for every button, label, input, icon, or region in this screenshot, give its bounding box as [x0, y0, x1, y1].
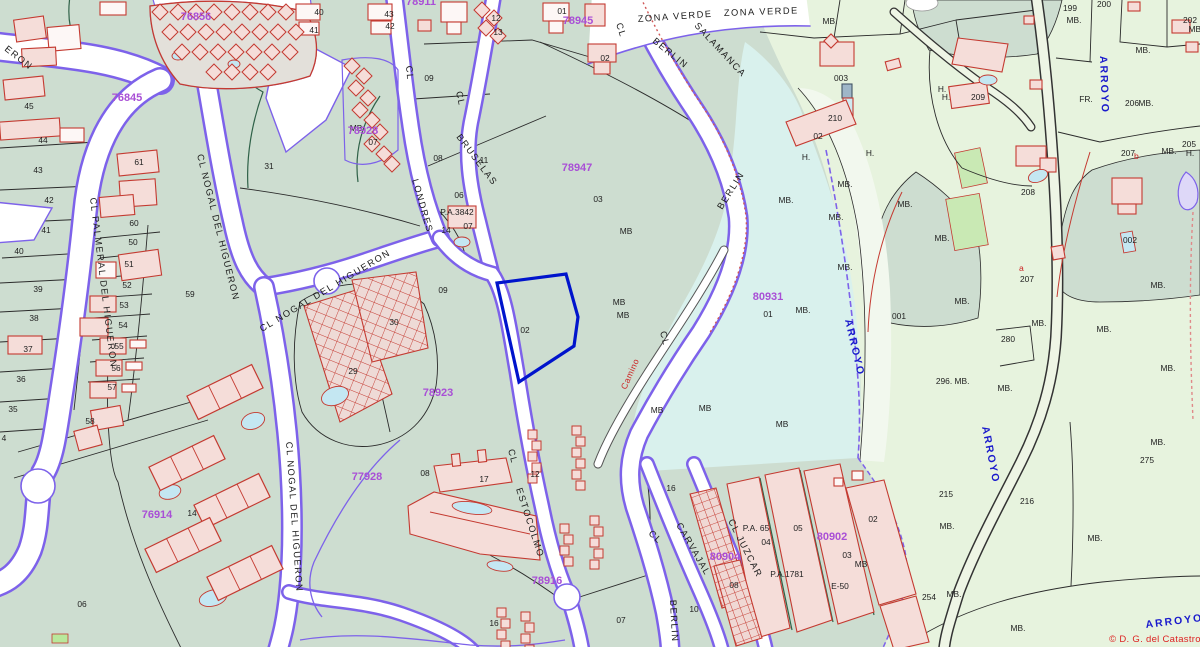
parcel-label-mb: MB. — [838, 262, 853, 272]
parcel-label-mb: MB. — [1139, 98, 1154, 108]
parcel-label-mb: MB. — [1067, 15, 1082, 25]
water-label-arroyo: ARROYO — [1097, 56, 1111, 114]
parcel-label-12: 12 — [530, 469, 540, 479]
building — [590, 538, 599, 547]
parcel-label-53: 53 — [119, 300, 129, 310]
cadastral-map[interactable]: 4544434241403938373635461605051525354555… — [0, 0, 1200, 647]
parcel-label-01: 01 — [763, 309, 773, 319]
parcel-label-fr: FR. — [1079, 94, 1093, 104]
parcel-label-35: 35 — [8, 404, 18, 414]
parcel-label-16: 16 — [666, 483, 676, 493]
building — [576, 481, 585, 490]
parcel-label-13: 13 — [493, 27, 503, 37]
parcel-label-mb: MB. — [955, 376, 970, 386]
parcel-label-60: 60 — [129, 218, 139, 228]
building — [501, 619, 510, 628]
parcel-label-mb: MB — [620, 226, 633, 236]
building — [594, 549, 603, 558]
parcel-label-03: 03 — [842, 550, 852, 560]
parcel-label-216: 216 — [1020, 496, 1034, 506]
parcel-label-h: H. — [942, 92, 950, 102]
building — [564, 535, 573, 544]
street-label-cl: CL — [404, 65, 415, 81]
green-parcel — [52, 634, 68, 643]
parcel-label-39: 39 — [33, 284, 43, 294]
building — [564, 557, 573, 566]
parcel-label-207: 207 — [1020, 274, 1034, 284]
parcel-label-mb: MB. — [1136, 45, 1151, 55]
parcel-label-mb: MB — [776, 419, 789, 429]
parcel-label-003: 003 — [834, 73, 848, 83]
parcel-label-02: 02 — [813, 131, 823, 141]
parcel-label-210: 210 — [828, 113, 842, 123]
parcel-label-4: 4 — [2, 433, 7, 443]
parcel-label-209: 209 — [971, 92, 985, 102]
parcel-label-45: 45 — [24, 101, 34, 111]
block-label-80931: 80931 — [753, 291, 784, 303]
building — [532, 441, 541, 450]
parcel-label-08: 08 — [433, 153, 443, 163]
block-label-76856: 76856 — [181, 11, 212, 23]
parcel-label-mb: MB. — [1032, 318, 1047, 328]
parcel-label-41: 41 — [309, 25, 319, 35]
block-label-80902: 80902 — [817, 531, 848, 543]
parcel-label-41: 41 — [41, 225, 51, 235]
building — [590, 560, 599, 569]
parcel-label-02: 02 — [868, 514, 878, 524]
parcel-label-06: 06 — [77, 599, 87, 609]
annotation-label-b: b — [1134, 151, 1139, 161]
parcel-label-37: 37 — [23, 344, 33, 354]
parcel-label-mb: MB — [855, 559, 868, 569]
parcel-label-mb: MB — [699, 403, 712, 413]
parcel-label-mb: MB. — [1011, 623, 1026, 633]
parcel-label-mb: MB. — [1161, 363, 1176, 373]
building — [525, 623, 534, 632]
block-label-78947: 78947 — [562, 162, 593, 174]
parcel-label-h: H. — [866, 148, 874, 158]
parcel-label-mb: MB. — [838, 179, 853, 189]
parcel-label-57: 57 — [107, 382, 117, 392]
parcel-label-07: 07 — [463, 221, 473, 231]
parcel-label-296: 296. — [936, 376, 952, 386]
building — [572, 426, 581, 435]
attribution: © D. G. del Catastro — [1109, 634, 1200, 645]
parcel-label-05: 05 — [793, 523, 803, 533]
parcel-label-mb: MB. — [829, 212, 844, 222]
parcel-label-14: 14 — [187, 508, 197, 518]
parcel-label-58: 58 — [85, 416, 95, 426]
parcel-label-mb: MB. — [998, 383, 1013, 393]
parcel-label-14: 14 — [441, 225, 451, 235]
building — [497, 630, 506, 639]
parcel-label-e50: E-50 — [831, 581, 849, 591]
parcel-label-mb: MB. — [955, 296, 970, 306]
parcel-label-40: 40 — [314, 7, 324, 17]
parcel-label-mb: MB. — [779, 195, 794, 205]
parcel-label-mb: MB. — [947, 589, 962, 599]
parcel-label-36: 36 — [16, 374, 26, 384]
parcel-label-31: 31 — [264, 161, 274, 171]
parcel-label-07: 07 — [616, 615, 626, 625]
parcel-label-280: 280 — [1001, 334, 1015, 344]
parcel-label-51: 51 — [124, 259, 134, 269]
parcel-label-mb: MB. — [796, 305, 811, 315]
parcel-label-40: 40 — [14, 246, 24, 256]
parcel-label-42: 42 — [44, 195, 54, 205]
parcel-label-12: 12 — [491, 13, 501, 23]
block-label-77928: 77928 — [352, 471, 383, 483]
parcel-label-pa1781: P.A.1781 — [770, 569, 804, 579]
block-label-78911: 78911 — [406, 0, 436, 8]
parcel-label-16: 16 — [489, 618, 499, 628]
parcel-label-mb: MB. — [898, 199, 913, 209]
parcel-label-pa65: P.A. 65 — [743, 523, 770, 533]
parcel-label-30: 30 — [389, 317, 399, 327]
parcel-label-mb: MB. — [1162, 146, 1177, 156]
parcel-label-h: H. — [802, 152, 810, 162]
block-label-76845: 76845 — [112, 92, 143, 104]
roundabout — [21, 469, 55, 503]
parcel-label-206: 206 — [1125, 98, 1139, 108]
parcel-label-03: 03 — [593, 194, 603, 204]
block-label-78928: 78928 — [348, 125, 379, 137]
parcel-label-38: 38 — [29, 313, 39, 323]
parcel-label-08: 08 — [729, 580, 739, 590]
parcel-label-pa3842: P.A.3842 — [440, 207, 474, 217]
parcel-label-52: 52 — [122, 280, 132, 290]
parcel-label-200: 200 — [1097, 0, 1111, 9]
building — [497, 608, 506, 617]
parcel-label-10: 10 — [689, 604, 699, 614]
parcel-label-208: 208 — [1021, 187, 1035, 197]
block-label-78916: 78916 — [532, 575, 563, 587]
building — [560, 524, 569, 533]
parcel-label-h: H. — [1186, 148, 1194, 158]
parcel-label-43: 43 — [384, 9, 394, 19]
parcel-label-50: 50 — [128, 237, 138, 247]
parcel-label-mb: MB. — [823, 16, 838, 26]
parcel-label-001: 001 — [892, 311, 906, 321]
building — [590, 516, 599, 525]
block-label-80904: 80904 — [710, 551, 741, 563]
block-label-78945: 78945 — [563, 15, 594, 27]
parcel-label-09: 09 — [424, 73, 434, 83]
building — [572, 448, 581, 457]
parcel-label-07: 07 — [368, 137, 378, 147]
parcel-label-mb: MB. — [935, 233, 950, 243]
annotation-label-a: a — [1019, 263, 1024, 273]
parcel-label-mb: MB. — [1189, 24, 1200, 34]
parcel-label-54: 54 — [118, 320, 128, 330]
parcel-label-mb: MB — [617, 310, 630, 320]
parcel-label-mb: MB. — [1097, 324, 1112, 334]
parcel-label-02: 02 — [600, 53, 610, 63]
block-label-78923: 78923 — [423, 387, 454, 399]
parcel-label-59: 59 — [185, 289, 195, 299]
building — [528, 430, 537, 439]
parcel-label-215: 215 — [939, 489, 953, 499]
roundabout — [554, 584, 580, 610]
parcel-label-mb: MB. — [1151, 280, 1166, 290]
parcel-label-mb: MB — [613, 297, 626, 307]
parcel-label-04: 04 — [761, 537, 771, 547]
parcel-label-61: 61 — [134, 157, 144, 167]
parcel-label-02: 02 — [520, 325, 530, 335]
parcel-label-mb: MB. — [940, 521, 955, 531]
parcel-label-199: 199 — [1063, 3, 1077, 13]
building — [501, 641, 510, 647]
building — [521, 634, 530, 643]
parcel-label-275: 275 — [1140, 455, 1154, 465]
building — [572, 470, 581, 479]
building — [576, 459, 585, 468]
parcel-label-08: 08 — [420, 468, 430, 478]
parcel-label-09: 09 — [438, 285, 448, 295]
block-label-76914: 76914 — [142, 509, 173, 521]
parcel-label-mb: MB — [651, 405, 664, 415]
building — [576, 437, 585, 446]
parcel-label-254: 254 — [922, 592, 936, 602]
building — [521, 612, 530, 621]
parcel-label-43: 43 — [33, 165, 43, 175]
parcel-label-06: 06 — [454, 190, 464, 200]
building — [560, 546, 569, 555]
building — [528, 452, 537, 461]
parcel-label-44: 44 — [38, 135, 48, 145]
parcel-label-mb: MB. — [1088, 533, 1103, 543]
parcel-label-mb: MB. — [1151, 437, 1166, 447]
parcel-label-17: 17 — [479, 474, 489, 484]
cadastral-map-canvas[interactable]: 4544434241403938373635461605051525354555… — [0, 0, 1200, 647]
parcel-label-42: 42 — [385, 21, 395, 31]
parcel-label-29: 29 — [348, 366, 358, 376]
building — [594, 527, 603, 536]
parcel-label-002: 002 — [1123, 235, 1137, 245]
